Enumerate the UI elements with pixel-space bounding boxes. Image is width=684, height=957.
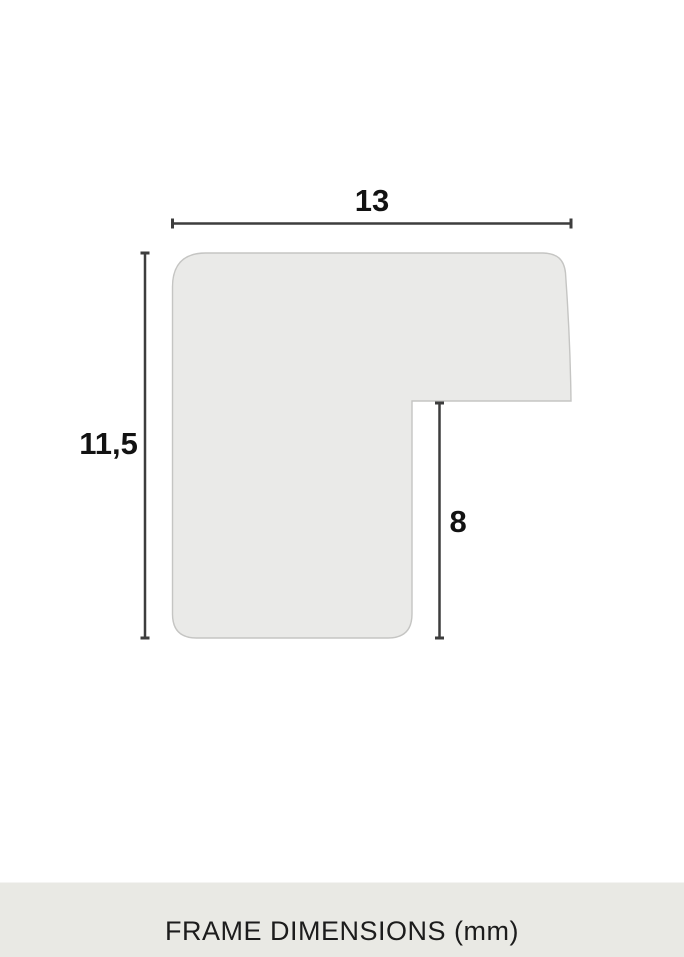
svg-text:FRAME DIMENSIONS (mm): FRAME DIMENSIONS (mm) — [165, 916, 519, 946]
svg-text:13: 13 — [355, 183, 389, 218]
svg-text:11,5: 11,5 — [79, 426, 138, 461]
svg-text:8: 8 — [450, 504, 467, 539]
